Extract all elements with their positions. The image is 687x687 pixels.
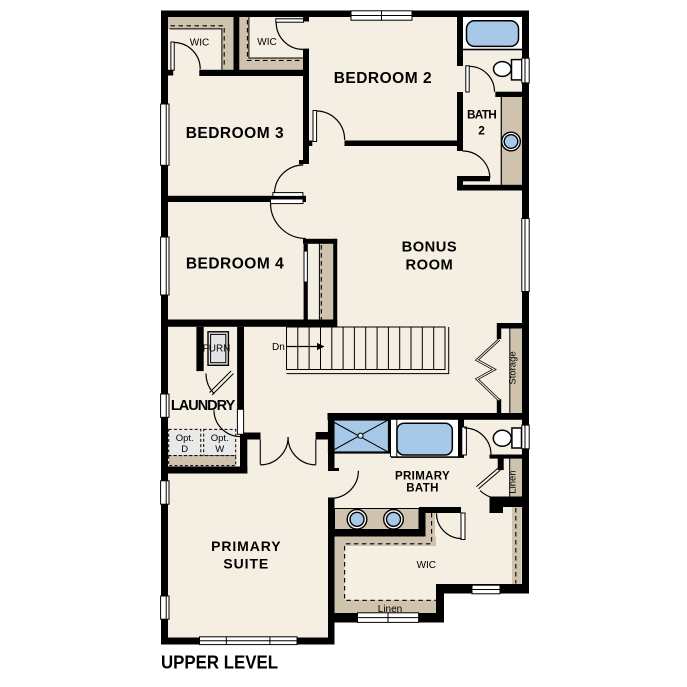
- svg-text:Dn: Dn: [272, 342, 285, 353]
- svg-text:BEDROOM 4: BEDROOM 4: [186, 255, 284, 272]
- svg-text:BATH: BATH: [406, 483, 439, 495]
- svg-text:BONUS: BONUS: [402, 240, 458, 256]
- svg-text:Linen: Linen: [378, 604, 402, 615]
- svg-text:SUITE: SUITE: [223, 556, 269, 572]
- svg-text:W: W: [215, 444, 224, 455]
- svg-text:2: 2: [478, 123, 485, 137]
- svg-text:LAUNDRY: LAUNDRY: [171, 398, 236, 414]
- svg-text:Opt.: Opt.: [176, 433, 194, 444]
- svg-text:Storage: Storage: [508, 351, 519, 384]
- svg-text:WIC: WIC: [417, 560, 436, 571]
- svg-text:PRIMARY: PRIMARY: [395, 471, 450, 483]
- svg-text:Opt.: Opt.: [211, 433, 229, 444]
- svg-text:FURN: FURN: [203, 344, 231, 355]
- svg-text:WIC: WIC: [257, 37, 276, 48]
- svg-text:D: D: [181, 444, 188, 455]
- svg-text:PRIMARY: PRIMARY: [211, 538, 281, 554]
- svg-text:BEDROOM 3: BEDROOM 3: [186, 125, 284, 142]
- svg-text:Linen: Linen: [508, 470, 519, 493]
- svg-text:BEDROOM 2: BEDROOM 2: [334, 70, 432, 87]
- svg-text:BATH: BATH: [467, 108, 496, 122]
- svg-text:UPPER LEVEL: UPPER LEVEL: [161, 653, 278, 673]
- svg-text:ROOM: ROOM: [406, 258, 454, 274]
- svg-text:WIC: WIC: [190, 38, 209, 49]
